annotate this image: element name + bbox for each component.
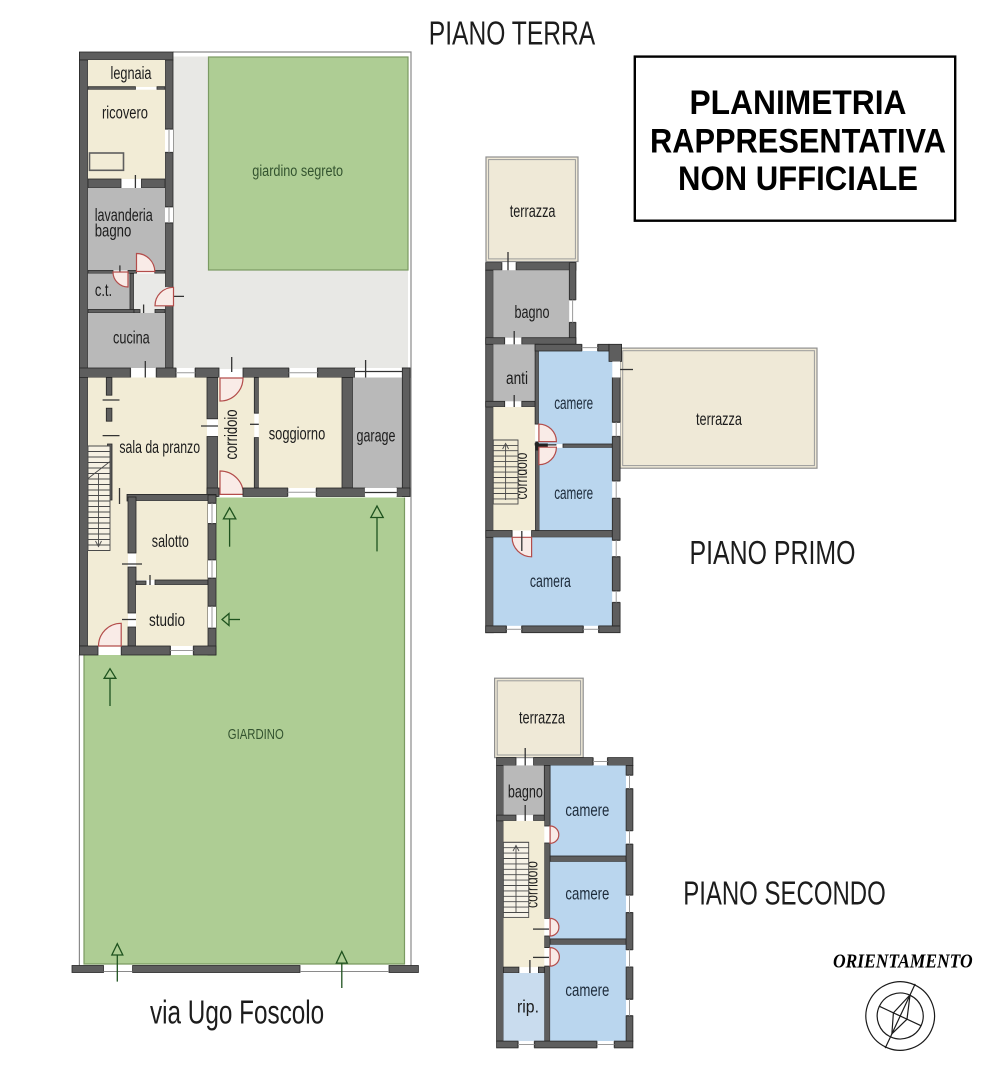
svg-text:corridoio: corridoio xyxy=(221,410,241,460)
svg-text:giardino segreto: giardino segreto xyxy=(252,163,343,180)
svg-text:GIARDINO: GIARDINO xyxy=(228,726,284,743)
svg-text:ricovero: ricovero xyxy=(102,103,148,123)
svg-text:salotto: salotto xyxy=(152,531,189,551)
svg-text:legnaia: legnaia xyxy=(111,63,152,83)
svg-text:camere: camere xyxy=(565,980,609,1000)
svg-text:terrazza: terrazza xyxy=(510,201,556,221)
svg-text:camere: camere xyxy=(565,884,609,904)
svg-text:PIANO PRIMO: PIANO PRIMO xyxy=(690,534,856,571)
svg-text:rip.: rip. xyxy=(517,997,539,1017)
svg-text:camere: camere xyxy=(554,393,593,413)
svg-text:PLANIMETRIA: PLANIMETRIA xyxy=(690,84,907,122)
svg-text:PIANO SECONDO: PIANO SECONDO xyxy=(683,875,886,912)
svg-text:studio: studio xyxy=(149,610,185,630)
svg-text:PIANO TERRA: PIANO TERRA xyxy=(429,15,595,52)
svg-text:soggiorno: soggiorno xyxy=(269,424,326,444)
svg-text:garage: garage xyxy=(357,426,396,446)
svg-text:NON UFFICIALE: NON UFFICIALE xyxy=(678,160,918,198)
svg-text:RAPPRESENTATIVA: RAPPRESENTATIVA xyxy=(650,123,946,161)
svg-text:c.t.: c.t. xyxy=(95,280,112,300)
svg-text:sala da pranzo: sala da pranzo xyxy=(119,437,200,457)
svg-text:bagno: bagno xyxy=(95,221,132,241)
svg-text:ORIENTAMENTO: ORIENTAMENTO xyxy=(833,951,973,973)
svg-text:via Ugo Foscolo: via Ugo Foscolo xyxy=(150,994,324,1031)
svg-text:cucina: cucina xyxy=(113,328,150,348)
svg-text:bagno: bagno xyxy=(508,782,543,802)
svg-text:terrazza: terrazza xyxy=(696,409,742,429)
svg-text:camera: camera xyxy=(530,571,571,591)
svg-text:camere: camere xyxy=(565,800,609,820)
svg-text:bagno: bagno xyxy=(515,302,550,322)
svg-text:anti: anti xyxy=(506,368,528,388)
svg-text:terrazza: terrazza xyxy=(519,708,565,728)
svg-text:camere: camere xyxy=(554,483,593,503)
